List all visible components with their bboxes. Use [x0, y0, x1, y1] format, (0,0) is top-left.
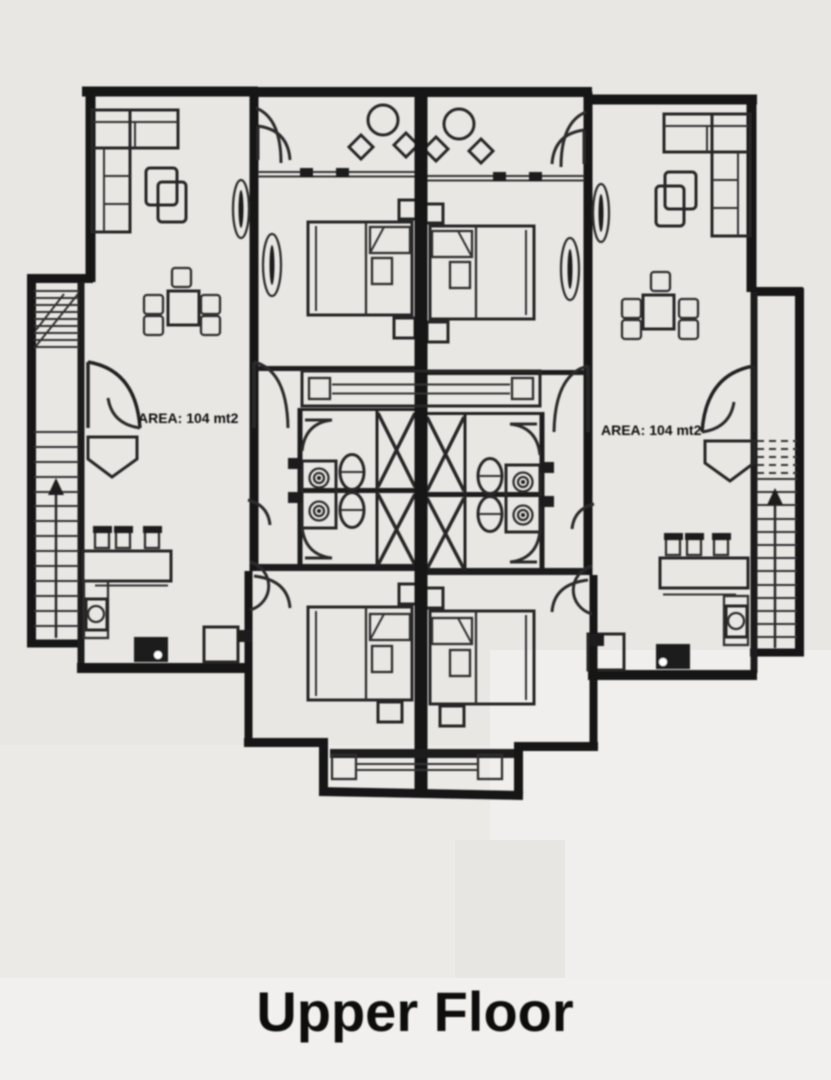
svg-text:Upper Floor: Upper Floor [256, 980, 573, 1043]
svg-text:AREA: 104 mt2: AREA: 104 mt2 [138, 410, 239, 426]
svg-text:AREA: 104 mt2: AREA: 104 mt2 [601, 422, 702, 438]
